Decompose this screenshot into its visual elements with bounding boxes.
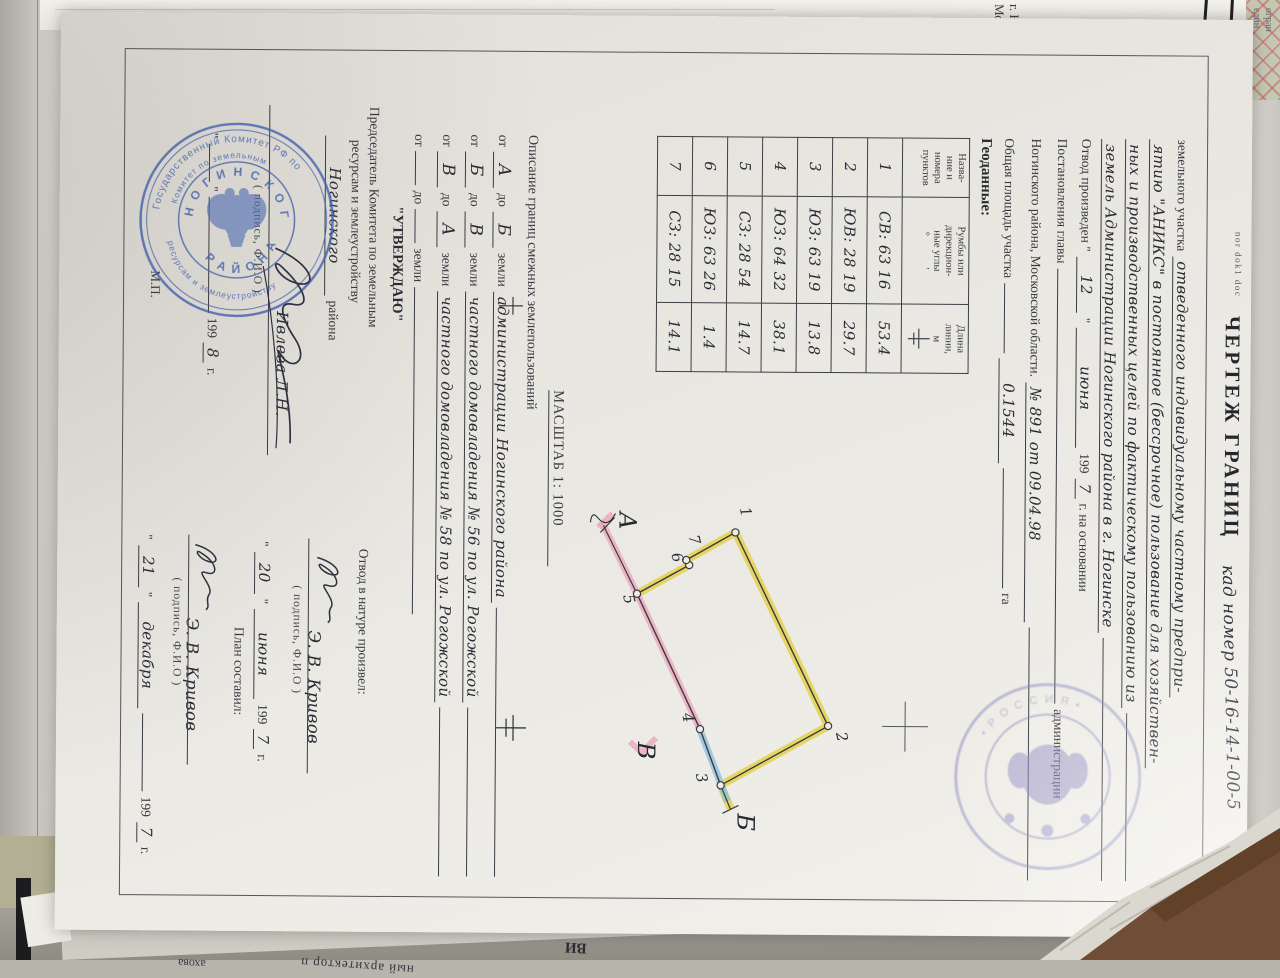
geodata-header-row: Назва- ние и номера пунктов Румбы или ди…	[901, 138, 970, 373]
col-header-rumbs: Румбы или дирекцион- ные углы° ′	[901, 197, 969, 304]
point-label-1: 1	[736, 505, 756, 519]
approver-signature	[256, 238, 323, 453]
handwritten-day: 20	[254, 552, 273, 594]
from-word: от	[467, 135, 483, 148]
land-word: земли	[494, 253, 510, 287]
point-letter: Б	[492, 212, 513, 248]
allotment-signature-row: Э. В. Кривов	[304, 553, 345, 744]
hand-cross-mark	[907, 327, 929, 351]
point-label-5: 5	[619, 592, 639, 606]
geodata-row: 5СЗ: 28 5414.7	[726, 137, 763, 372]
boundary-row-4: от до земли	[408, 134, 430, 614]
blank-line	[466, 708, 481, 877]
handwritten-area-value: 0.1544	[998, 358, 1018, 463]
col-header-length: Длина линии, м	[901, 304, 969, 373]
quote: "	[255, 541, 271, 547]
approve-line-1: Председатель Комитета по земельным	[365, 107, 383, 328]
geodata-row: 4ЮЗ: 64 3238.1	[761, 137, 798, 372]
background-sheet-text-corner: огранедин	[1251, 8, 1274, 32]
length-value: 14.7	[726, 303, 761, 372]
geodata-heading: Геоданные:	[977, 138, 995, 216]
blank-line	[1002, 468, 1018, 588]
to-word: до	[467, 193, 483, 207]
survey-cross	[882, 701, 928, 751]
corner-letter-b: Б	[731, 812, 759, 831]
frag-line: огран	[1263, 8, 1274, 32]
handwritten-month: декабря	[137, 602, 157, 708]
plan-author-heading: План составил:	[230, 627, 247, 715]
length-value: 1.4	[691, 303, 726, 372]
point-letter: В	[437, 152, 458, 188]
col-header-points: Назва- ние и номера пунктов	[902, 138, 970, 197]
point-number: 3	[797, 137, 832, 196]
handwritten-month: июня	[1075, 328, 1095, 448]
upside-down-text-fragment: ВИ	[565, 937, 588, 955]
blank-letter	[414, 209, 429, 243]
plan-author-signature	[187, 541, 224, 613]
rumb-value: СЗ: 28 15	[656, 195, 692, 302]
printed-text: га	[998, 593, 1014, 605]
point-label-3: 3	[692, 771, 712, 784]
geodata-row: 6ЮЗ: 63 261.4	[691, 137, 728, 372]
rumb-value: ЮВ: 28 19	[831, 197, 867, 304]
col-header-rumbs-text: Румбы или дирекцион- ные углы	[931, 225, 966, 277]
allotment-date-line: " 20 " июня 199 7 г.	[253, 541, 274, 771]
file-note: nor dok1 doc	[1233, 232, 1243, 298]
stacked-papers-left-edge	[0, 0, 64, 960]
corner-letter-a: А	[613, 510, 641, 530]
rumb-value: ЮЗ: 64 32	[761, 196, 797, 303]
quote: "	[139, 534, 155, 540]
blank-line	[412, 287, 428, 614]
year-suffix: г.	[203, 368, 219, 376]
handwritten-month: июня	[253, 609, 273, 699]
photo-of-document: { "surroundings": { "top_sheet": {"line1…	[0, 0, 1280, 960]
printed-text: 199	[1076, 453, 1092, 473]
handwritten-year: 7	[136, 822, 155, 842]
printed-text: Постановления главы	[1053, 139, 1070, 264]
surveyor-signature	[309, 553, 346, 625]
land-word: земли	[438, 252, 454, 286]
geodata-row: 3ЮЗ: 63 1913.8	[796, 137, 833, 372]
col-header-units: ° ′	[919, 232, 930, 270]
handwritten-text: земель Администрации Ногинского района в…	[1098, 139, 1120, 633]
printed-text: г. на основании	[1075, 503, 1092, 591]
handwritten-year: 7	[1075, 478, 1094, 498]
boundary-extension-a	[603, 525, 637, 593]
from-word: от	[439, 134, 455, 147]
year-printed: 199	[137, 797, 153, 817]
point-letter: В	[464, 212, 485, 248]
desk-corner-overlay	[1000, 780, 1280, 960]
handwritten-owner: частного домовладения № 56 по ул. Рогожс…	[462, 291, 484, 702]
blank-line	[1004, 283, 1019, 353]
vertex-circles	[632, 528, 833, 790]
rumb-value: ЮЗ: 63 26	[691, 196, 727, 303]
land-word: земли	[410, 248, 426, 282]
point-letter: А	[493, 152, 514, 188]
point-letter: А	[436, 211, 457, 247]
upside-down-text-fragment: ахова	[178, 955, 206, 970]
allotment-heading: Отвод в натуре произвел:	[354, 549, 371, 695]
point-number: 2	[832, 138, 867, 197]
plan-date-line: " 21 " декабря 199 7 г.	[136, 534, 157, 854]
point-label-2: 2	[832, 729, 852, 743]
to-word: до	[411, 191, 427, 205]
handwritten-owner: частного домовладения № 58 по ул. Рогожс…	[434, 291, 456, 702]
rumb-value: СВ: 63 16	[866, 197, 902, 304]
signature-caption: ( подпись, Ф.И.О )	[290, 585, 303, 694]
point-number: 1	[867, 138, 902, 197]
signature-caption: ( подпись, Ф.И.О )	[170, 577, 183, 686]
paper-seam-line	[37, 0, 38, 960]
paper-edge-line	[55, 9, 775, 10]
hand-cross-mark	[499, 297, 523, 315]
paper-sheet-right-edge	[1248, 28, 1280, 838]
printed-text: Ногинского района, Московской области.	[1027, 138, 1045, 377]
length-value: 53.4	[866, 304, 901, 373]
length-value: 29.7	[831, 304, 866, 373]
handwritten-text: ных и производственных целей по фактичес…	[1121, 139, 1144, 708]
year-suffix: г.	[254, 754, 270, 762]
to-word: до	[439, 193, 455, 207]
approve-line-2: ресурсам и землеустройству	[347, 140, 364, 304]
handwritten-owner: администрации Ногинского района	[491, 292, 512, 603]
quote: "	[255, 599, 271, 605]
handwritten-day: 21	[138, 545, 157, 587]
handwritten-year: 7	[253, 729, 272, 749]
plan-author-name: Э. В. Кривов	[182, 618, 202, 732]
printed-text: земельного участка	[1173, 139, 1190, 251]
point-letter: Б	[465, 152, 486, 188]
handwritten-text: отведенного индивидуальному частному пре…	[1169, 256, 1191, 698]
land-word: земли	[466, 253, 482, 287]
geodata-row: 1СВ: 63 1653.4	[866, 138, 903, 373]
from-word: от	[411, 134, 427, 147]
boundary-description-heading: Описание границ смежных землепользований	[522, 135, 540, 410]
point-number: 6	[692, 137, 727, 196]
point-number: 5	[727, 137, 762, 196]
handwritten-resolution-number: № 891 от 09.04.98	[1024, 382, 1045, 622]
handwritten-day: 12	[1076, 257, 1095, 313]
rumb-value: СЗ: 28 54	[726, 196, 762, 303]
rumb-value: ЮЗ: 63 19	[796, 196, 832, 303]
handwritten-year: 8	[203, 343, 222, 363]
quote: "	[139, 592, 155, 598]
boundary-band-yellow	[635, 532, 829, 809]
blank-line	[438, 707, 453, 876]
year-printed: 199	[254, 704, 270, 724]
corner-letter-v: В	[632, 741, 660, 760]
approve-title: "УТВЕРЖДАЮ"	[388, 154, 407, 374]
blank-line	[494, 608, 510, 877]
length-value: 14.1	[656, 302, 691, 371]
frag-line: един	[1252, 8, 1263, 28]
printed-text: Общая площадь участка	[1000, 138, 1017, 278]
from-word: от	[495, 135, 511, 148]
length-value: 38.1	[761, 303, 796, 372]
blank-letter	[415, 152, 430, 186]
col-header-length-text: Длина линии, м	[931, 324, 966, 354]
geodata-table: Назва- ние и номера пунктов Румбы или ди…	[655, 136, 970, 374]
printed-text: Отвод произведен "	[1077, 139, 1094, 252]
blank-line	[142, 713, 157, 791]
printed-text: "	[1077, 318, 1093, 324]
hand-cross-mark	[496, 715, 526, 741]
year-suffix: г.	[137, 847, 153, 855]
plot-plan-drawing: 1 2 3 4 5 6 7 А Б В	[564, 455, 932, 853]
geodata-row: 2ЮВ: 28 1929.7	[831, 138, 868, 373]
point-label-7: 7	[684, 533, 704, 547]
geodata-row: 7СЗ: 28 1514.1	[656, 136, 693, 371]
length-value: 13.8	[796, 303, 831, 372]
point-number: 7	[657, 136, 692, 195]
point-number: 4	[762, 137, 797, 196]
scale-label: МАСШТАБ 1: 1000	[547, 390, 566, 567]
cadastral-number-handwritten: кад номер 50-16-14-1-00-5	[1218, 565, 1243, 811]
document-title: ЧЕРТЕЖ ГРАНИЦ	[1218, 316, 1245, 539]
to-word: до	[495, 193, 511, 207]
